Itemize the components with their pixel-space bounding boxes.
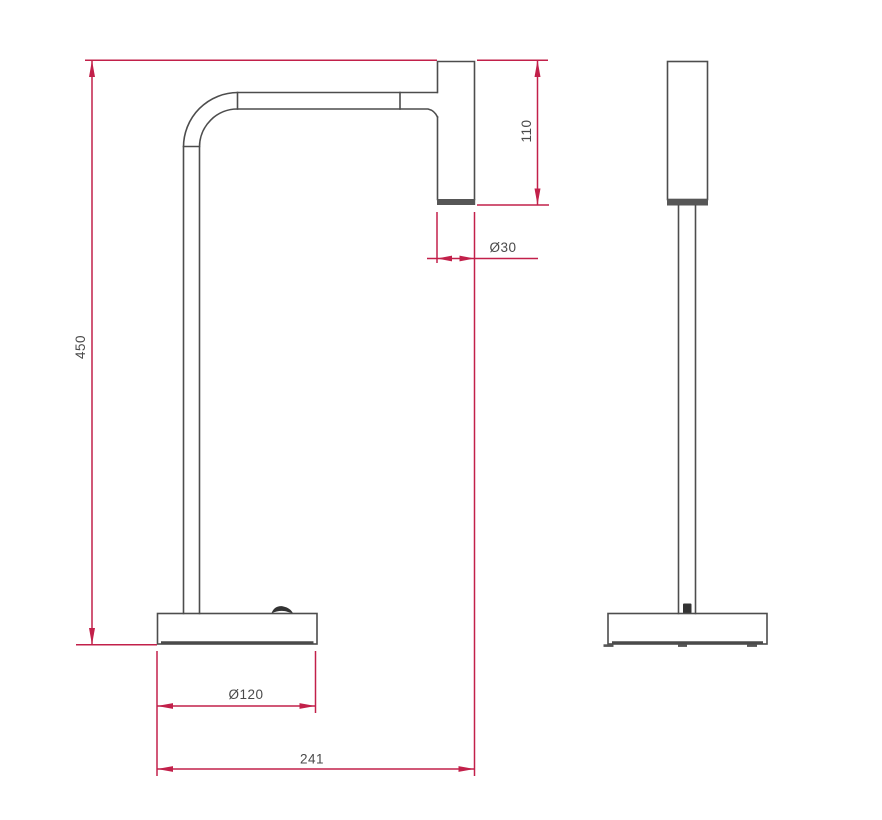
dim-241-arrow-left (157, 766, 173, 772)
dim-120-arrow-right (300, 703, 316, 709)
lamp-base-side-outline (608, 614, 767, 645)
dimension-annotations: 450 110 Ø30 (73, 60, 549, 776)
dim-241-label: 241 (300, 752, 324, 767)
dim-30-arrow-right (460, 256, 475, 262)
side-view (604, 62, 768, 647)
pole-set-screw (683, 604, 692, 614)
dim-110-arrow-up (535, 60, 541, 77)
base-foot-left (604, 644, 614, 647)
technical-drawing-canvas: 450 110 Ø30 (0, 0, 882, 820)
lamp-arm-inner-line (200, 109, 438, 614)
dimension-base-diameter: Ø120 (157, 651, 316, 776)
dim-450-label: 450 (73, 335, 88, 359)
dim-241-arrow-right (459, 766, 475, 772)
front-view (158, 62, 476, 645)
lamp-head-side-outline (668, 62, 708, 200)
dim-110-label: 110 (519, 119, 534, 142)
base-foot-right (747, 644, 757, 647)
dim-30-label: Ø30 (489, 240, 516, 255)
lamp-dimension-drawing: 450 110 Ø30 (0, 0, 882, 820)
dimension-overall-depth: 241 (157, 752, 475, 772)
dim-30-arrow-left (437, 256, 452, 262)
dim-120-label: Ø120 (228, 687, 263, 702)
base-foot-center (678, 644, 687, 647)
dimension-head-height: 110 (477, 60, 549, 205)
lamp-head-front-outline (438, 62, 475, 200)
dimension-head-diameter: Ø30 (427, 212, 538, 776)
dim-120-arrow-left (157, 703, 173, 709)
power-switch (272, 606, 293, 613)
lamp-base-front-outline (158, 614, 318, 645)
dim-110-arrow-down (535, 189, 541, 206)
dim-450-arrow-up (89, 60, 95, 77)
lamp-arm-outer-line (184, 93, 438, 614)
dimension-overall-height: 450 (73, 60, 157, 644)
lamp-head-lens-side (667, 199, 708, 206)
dim-450-arrow-down (89, 628, 95, 645)
lamp-head-lens-front (437, 199, 475, 205)
